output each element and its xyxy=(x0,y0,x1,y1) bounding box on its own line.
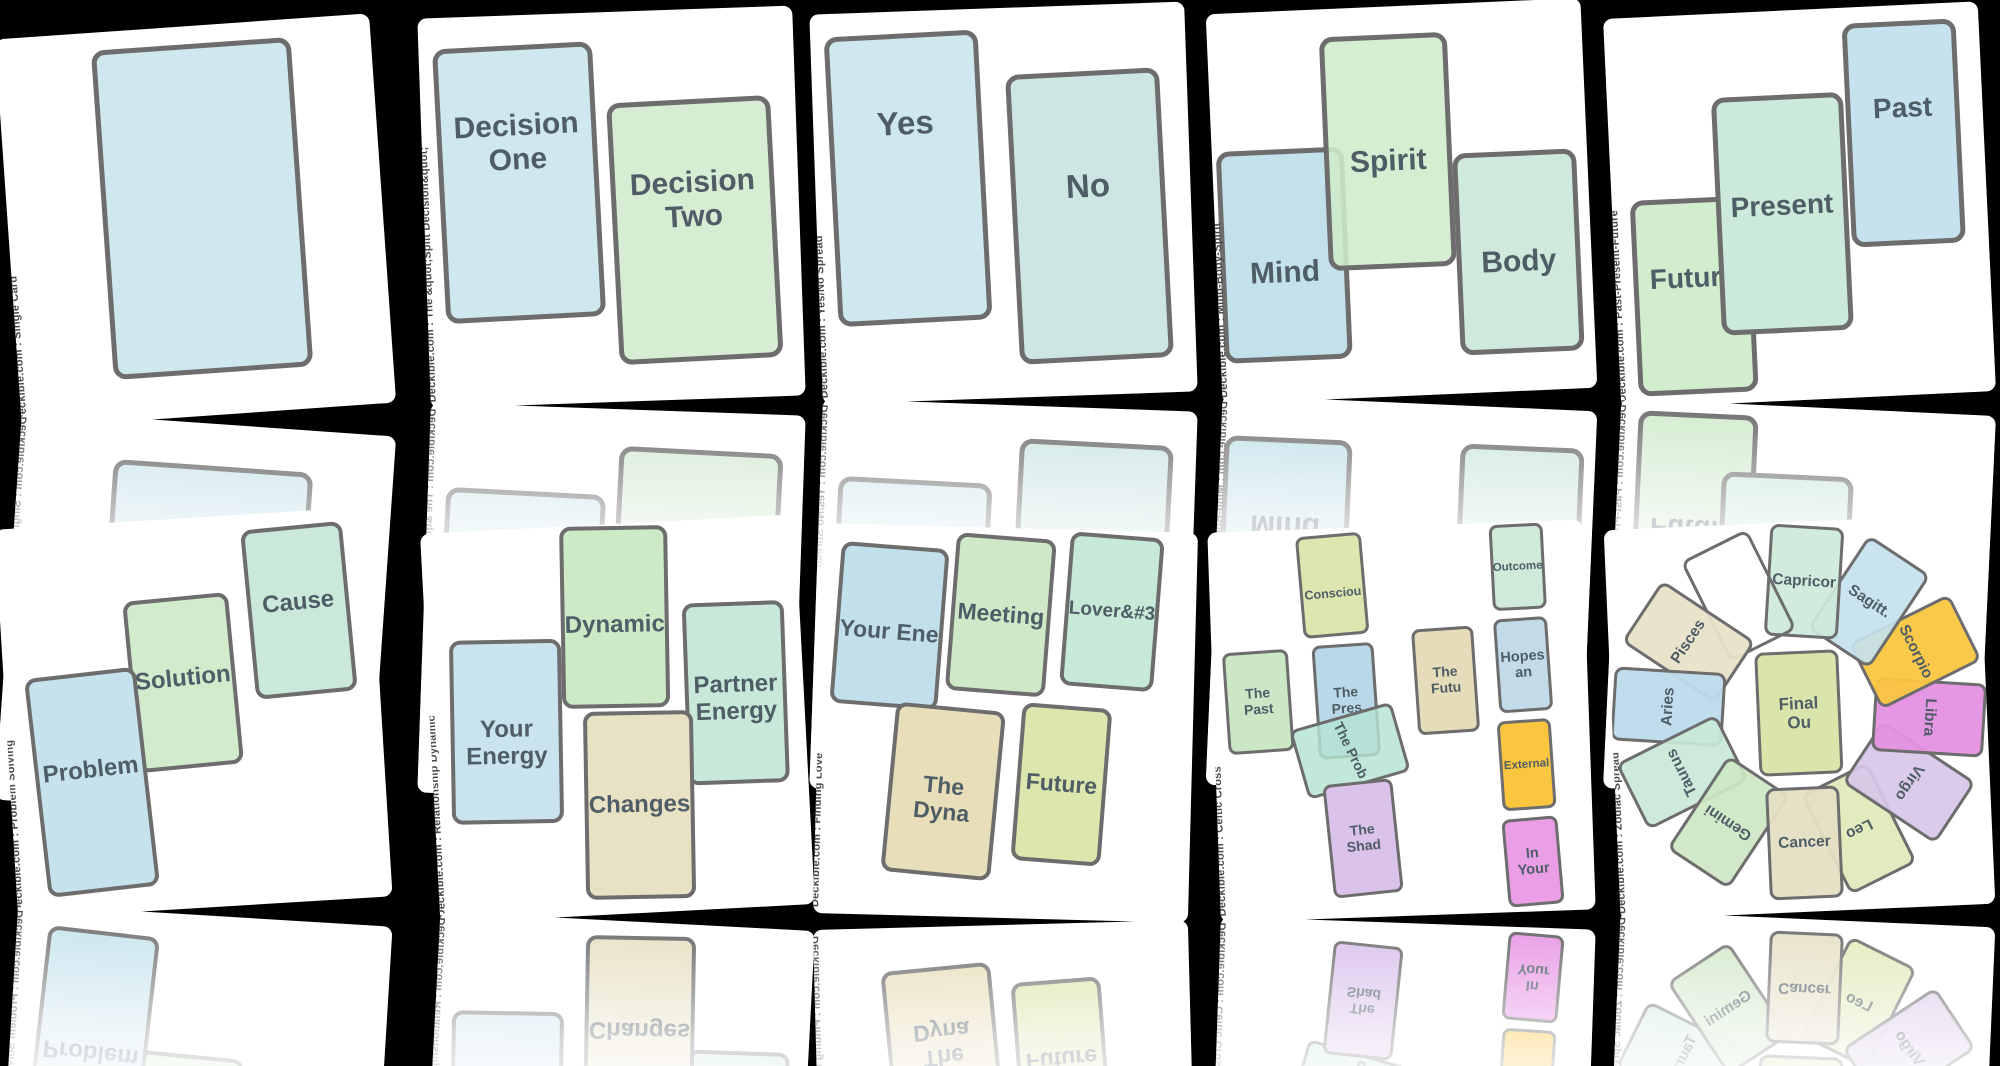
card-external: External xyxy=(1497,718,1557,812)
card-label: Problem xyxy=(41,752,139,790)
card-the-past: The Past xyxy=(1222,649,1295,755)
tile-caption: Deckible.com : Past-Present-Future xyxy=(1608,210,1629,403)
card-label: Taurus xyxy=(1663,746,1701,799)
card-leo: Leo xyxy=(1801,936,1917,1066)
tile: Future Present Past Deckible.com : Past-… xyxy=(1603,1,1996,408)
tile: Dynamic Your Energy Partner Energy Chang… xyxy=(420,911,815,1066)
card-the-shad: The Shad xyxy=(1322,940,1404,1061)
card-your-energy: Your Energy xyxy=(449,1010,564,1066)
card-label: Outcome xyxy=(1492,559,1542,574)
tile: Decision One Decision Two Deckible.com :… xyxy=(417,6,805,409)
card-cancer: Cancer xyxy=(1765,931,1844,1046)
tile-caption: Deckible.com : Problem Solving xyxy=(3,910,26,1066)
card-label: Aries xyxy=(1659,687,1679,727)
card-label: In Your xyxy=(1511,960,1556,996)
tile: Consciou The Past The Pres The Prob The … xyxy=(1207,520,1595,923)
spread-gallery: Deckible.com : Single Card Deckible.com … xyxy=(0,0,2000,1066)
card-cause: Cause xyxy=(240,521,358,700)
card-label: The Shad xyxy=(1334,820,1393,857)
card-the-prob: The Prob xyxy=(1289,1039,1411,1066)
card-in-your: In Your xyxy=(1501,815,1564,908)
reflection: Dynamic Your Energy Partner Energy Chang… xyxy=(430,921,805,1066)
tile-caption: Deckible.com : Celtic Cross xyxy=(1211,922,1228,1066)
tile-surface: Your Ene Meeting Lover&#3 The Dyna Futur… xyxy=(813,920,1198,1066)
card-final-ou: Final Ou xyxy=(1754,1054,1843,1066)
card-hopes-an: Hopes an xyxy=(1493,616,1553,714)
spread-tile-finding-love[interactable]: Your Ene Meeting Lover&#3 The Dyna Futur… xyxy=(818,528,1193,918)
tile-caption: Deckible.com : Finding Love xyxy=(813,936,825,1066)
card-label: Cancer xyxy=(1778,833,1831,853)
card-meeting: Meeting xyxy=(945,532,1057,697)
card-yes: Yes xyxy=(824,29,993,327)
tile-caption: Deckible.com : Problem Solving xyxy=(3,739,26,913)
card-gemini: Gemini xyxy=(1667,942,1791,1066)
spread-tile-past-present-future[interactable]: Future Present Past Deckible.com : Past-… xyxy=(1612,10,1987,400)
card-label: Lover&#3 xyxy=(1068,598,1156,626)
card-label: The Prob xyxy=(1330,1057,1371,1066)
card-no: No xyxy=(1005,67,1174,365)
card-your-energy: Your Energy xyxy=(449,639,564,825)
card-label: Taurus xyxy=(1663,1032,1701,1066)
card-changes: Changes xyxy=(583,710,696,900)
card-label: Virgo xyxy=(1891,1028,1927,1066)
card-label: In Your xyxy=(1511,843,1556,879)
tile: Yes No Deckible.com : Yes/No Spread xyxy=(809,2,1197,405)
tile-surface: Cause Solution Problem Deckible.com : Pr… xyxy=(0,904,393,1066)
tile: Cause Solution Problem Deckible.com : Pr… xyxy=(0,904,393,1066)
card-label: Final Ou xyxy=(1768,693,1830,734)
card-label: Leo xyxy=(1843,989,1875,1017)
card-the-dyna: The Dyna xyxy=(880,962,1006,1066)
tile: Your Ene Meeting Lover&#3 The Dyna Futur… xyxy=(813,920,1198,1066)
card-partner-energy: Partner Energy xyxy=(682,1050,790,1066)
card-virgo: Virgo xyxy=(1842,987,1976,1066)
tile-surface: Leo Virgo Libra Scorpio Sagitt. Capricor… xyxy=(1604,911,1996,1066)
card-label: Past xyxy=(1872,91,1933,125)
card-label: Spirit xyxy=(1349,143,1427,180)
card-partner-energy: Partner Energy xyxy=(682,600,790,785)
spread-tile-single-card[interactable]: Deckible.com : Single Card Deckible.com … xyxy=(8,26,383,416)
card-label: Virgo xyxy=(1891,761,1927,803)
card-future: Future xyxy=(1010,702,1112,867)
tile-caption: Deckible.com : Zodiac Spread xyxy=(1609,917,1628,1066)
card-spirit: Spirit xyxy=(1319,32,1457,271)
card-label: The Dyna xyxy=(889,1013,995,1066)
reflection: Cause Solution Problem Deckible.com : Pr… xyxy=(6,915,381,1066)
tile-surface: Consciou The Past The Pres The Prob The … xyxy=(1207,917,1595,1066)
card-label: Cause xyxy=(261,586,335,620)
card-taurus: Taurus xyxy=(1616,1001,1749,1066)
spread-tile-problem-solving[interactable]: Cause Solution Problem Deckible.com : Pr… xyxy=(6,518,381,908)
card-label: Gemini xyxy=(1702,800,1755,843)
card-label: Decision One xyxy=(440,105,593,180)
card-future: Future xyxy=(1010,976,1112,1066)
tile: Leo Virgo Libra Scorpio Sagitt. Capricor… xyxy=(1604,514,1996,920)
card-label: Dynamic xyxy=(565,611,666,640)
card-body: Body xyxy=(1452,148,1585,355)
card-past: Past xyxy=(1842,18,1966,247)
card-changes: Changes xyxy=(583,935,696,1066)
tile: Leo Virgo Libra Scorpio Sagitt. Capricor… xyxy=(1604,911,1996,1066)
tile-caption: Deckible.com : Yes/No Spread xyxy=(813,235,831,398)
tile: Consciou The Past The Pres The Prob The … xyxy=(1207,917,1595,1066)
card-dynamic: Dynamic xyxy=(559,525,670,709)
spread-tile-celtic-cross[interactable]: Consciou The Past The Pres The Prob The … xyxy=(1214,526,1589,916)
tile-surface: Yes No Deckible.com : Yes/No Spread xyxy=(809,2,1197,405)
tile: Deckible.com : Single Card xyxy=(0,13,396,428)
card-label: Hopes an xyxy=(1500,647,1546,682)
card-single xyxy=(91,37,314,380)
card-label: Future xyxy=(1025,769,1098,800)
card-the-dyna: The Dyna xyxy=(880,702,1006,882)
tile-surface: Your Ene Meeting Lover&#3 The Dyna Futur… xyxy=(813,523,1198,923)
tile: Mind Body Spirit Deckible.com : Mind-Bod… xyxy=(1206,0,1598,404)
tile-caption: Deckible.com : Celtic Cross xyxy=(1211,766,1228,917)
spread-tile-mind-body-spirit[interactable]: Mind Body Spirit Deckible.com : Mind-Bod… xyxy=(1214,6,1589,396)
card-label: Present xyxy=(1730,188,1834,224)
tile-surface: Cause Solution Problem Deckible.com : Pr… xyxy=(0,507,393,919)
card-outcome: Outcome xyxy=(1488,522,1546,611)
tile: Dynamic Your Energy Partner Energy Chang… xyxy=(420,514,815,923)
card-consciou: Consciou xyxy=(1295,532,1370,639)
card-label: Pisces xyxy=(1668,616,1710,667)
spread-tile-relationship-dynamic[interactable]: Dynamic Your Energy Partner Energy Chang… xyxy=(430,524,805,914)
card-label: Scorpio xyxy=(1895,622,1936,681)
card-lover: Lover&#3 xyxy=(1059,531,1165,692)
card-label: Your Energy xyxy=(454,716,559,772)
card-label: Your Ene xyxy=(839,615,940,648)
card-label: Body xyxy=(1481,244,1557,281)
spread-tile-zodiac-spread[interactable]: Leo Virgo Libra Scorpio Sagitt. Capricor… xyxy=(1612,522,1987,912)
tile-surface: Deckible.com : Single Card xyxy=(0,13,396,428)
card-label: Gemini xyxy=(1702,987,1755,1030)
card-the-futu: The Futu xyxy=(1411,625,1480,735)
tile-caption: Deckible.com : The &quot;Split Decision&… xyxy=(418,146,439,402)
card-decision-two: Decision Two xyxy=(606,95,783,365)
tile-surface: Dynamic Your Energy Partner Energy Chang… xyxy=(420,911,815,1066)
card-label: The Dyna xyxy=(889,769,995,830)
tile-surface: Consciou The Past The Pres The Prob The … xyxy=(1207,520,1595,923)
card-your-ene: Your Ene xyxy=(829,541,949,711)
tile-caption: Deckible.com : Finding Love xyxy=(813,752,825,907)
card-label: The Shad xyxy=(1334,982,1393,1019)
card-label: The Prob xyxy=(1330,720,1371,781)
reflection: Leo Virgo Libra Scorpio Sagitt. Capricor… xyxy=(1612,919,1987,1066)
card-label: Meeting xyxy=(957,599,1046,631)
tile-surface: Mind Body Spirit Deckible.com : Mind-Bod… xyxy=(1206,0,1598,404)
card-label: Solution xyxy=(134,661,232,697)
card-label: Consciou xyxy=(1304,584,1362,603)
card-external: External xyxy=(1497,1028,1557,1066)
tile: Cause Solution Problem Deckible.com : Pr… xyxy=(0,507,393,919)
card-label: External xyxy=(1504,757,1550,773)
card-label: Partner Energy xyxy=(688,670,784,727)
card-solution: Solution xyxy=(122,1050,244,1066)
card-label: Yes xyxy=(876,103,935,143)
reflection: Your Ene Meeting Lover&#3 The Dyna Futur… xyxy=(818,925,1193,1066)
tile-surface: Future Present Past Deckible.com : Past-… xyxy=(1603,1,1996,408)
card-label: The Past xyxy=(1231,685,1285,720)
spread-tile-split-decision[interactable]: Decision One Decision Two Deckible.com :… xyxy=(424,12,799,402)
card-label: The Futu xyxy=(1421,663,1471,698)
card-label: Decision Two xyxy=(615,163,772,238)
tile-surface: Leo Virgo Libra Scorpio Sagitt. Capricor… xyxy=(1604,514,1996,920)
tile-surface: Decision One Decision Two Deckible.com :… xyxy=(417,6,805,409)
card-label: Problem xyxy=(41,1034,139,1066)
tile: Your Ene Meeting Lover&#3 The Dyna Futur… xyxy=(813,523,1198,923)
card-label: Sagitt. xyxy=(1845,582,1894,623)
spread-tile-yes-no[interactable]: Yes No Deckible.com : Yes/No Spread Yes … xyxy=(816,8,1191,398)
reflection: Consciou The Past The Pres The Prob The … xyxy=(1214,923,1589,1066)
card-in-your: In Your xyxy=(1501,931,1564,1024)
card-label: No xyxy=(1065,166,1111,205)
tile-caption: Deckible.com : Relationship Dynamic xyxy=(426,917,449,1066)
card-label: Changes xyxy=(589,1016,691,1045)
card-the-shad: The Shad xyxy=(1322,778,1404,899)
card-label: Capricor xyxy=(1772,571,1837,592)
card-decision-one: Decision One xyxy=(432,41,606,324)
card-label: Cancer xyxy=(1778,978,1831,998)
tile-caption: Deckible.com : Relationship Dynamic xyxy=(426,715,449,918)
card-present: Present xyxy=(1711,92,1854,336)
card-label: Mind xyxy=(1249,255,1320,292)
card-label: Future xyxy=(1025,1043,1098,1066)
card-problem: Problem xyxy=(24,925,160,1066)
card-label: Leo xyxy=(1843,815,1875,843)
card-cancer: Cancer xyxy=(1765,785,1844,900)
card-label: Changes xyxy=(589,791,691,820)
tile-surface: Dynamic Your Energy Partner Energy Chang… xyxy=(420,514,815,923)
tile-caption: Deckible.com : Single Card xyxy=(7,275,29,423)
card-final-ou: Final Ou xyxy=(1754,649,1843,777)
card-label: Libra xyxy=(1919,698,1939,737)
